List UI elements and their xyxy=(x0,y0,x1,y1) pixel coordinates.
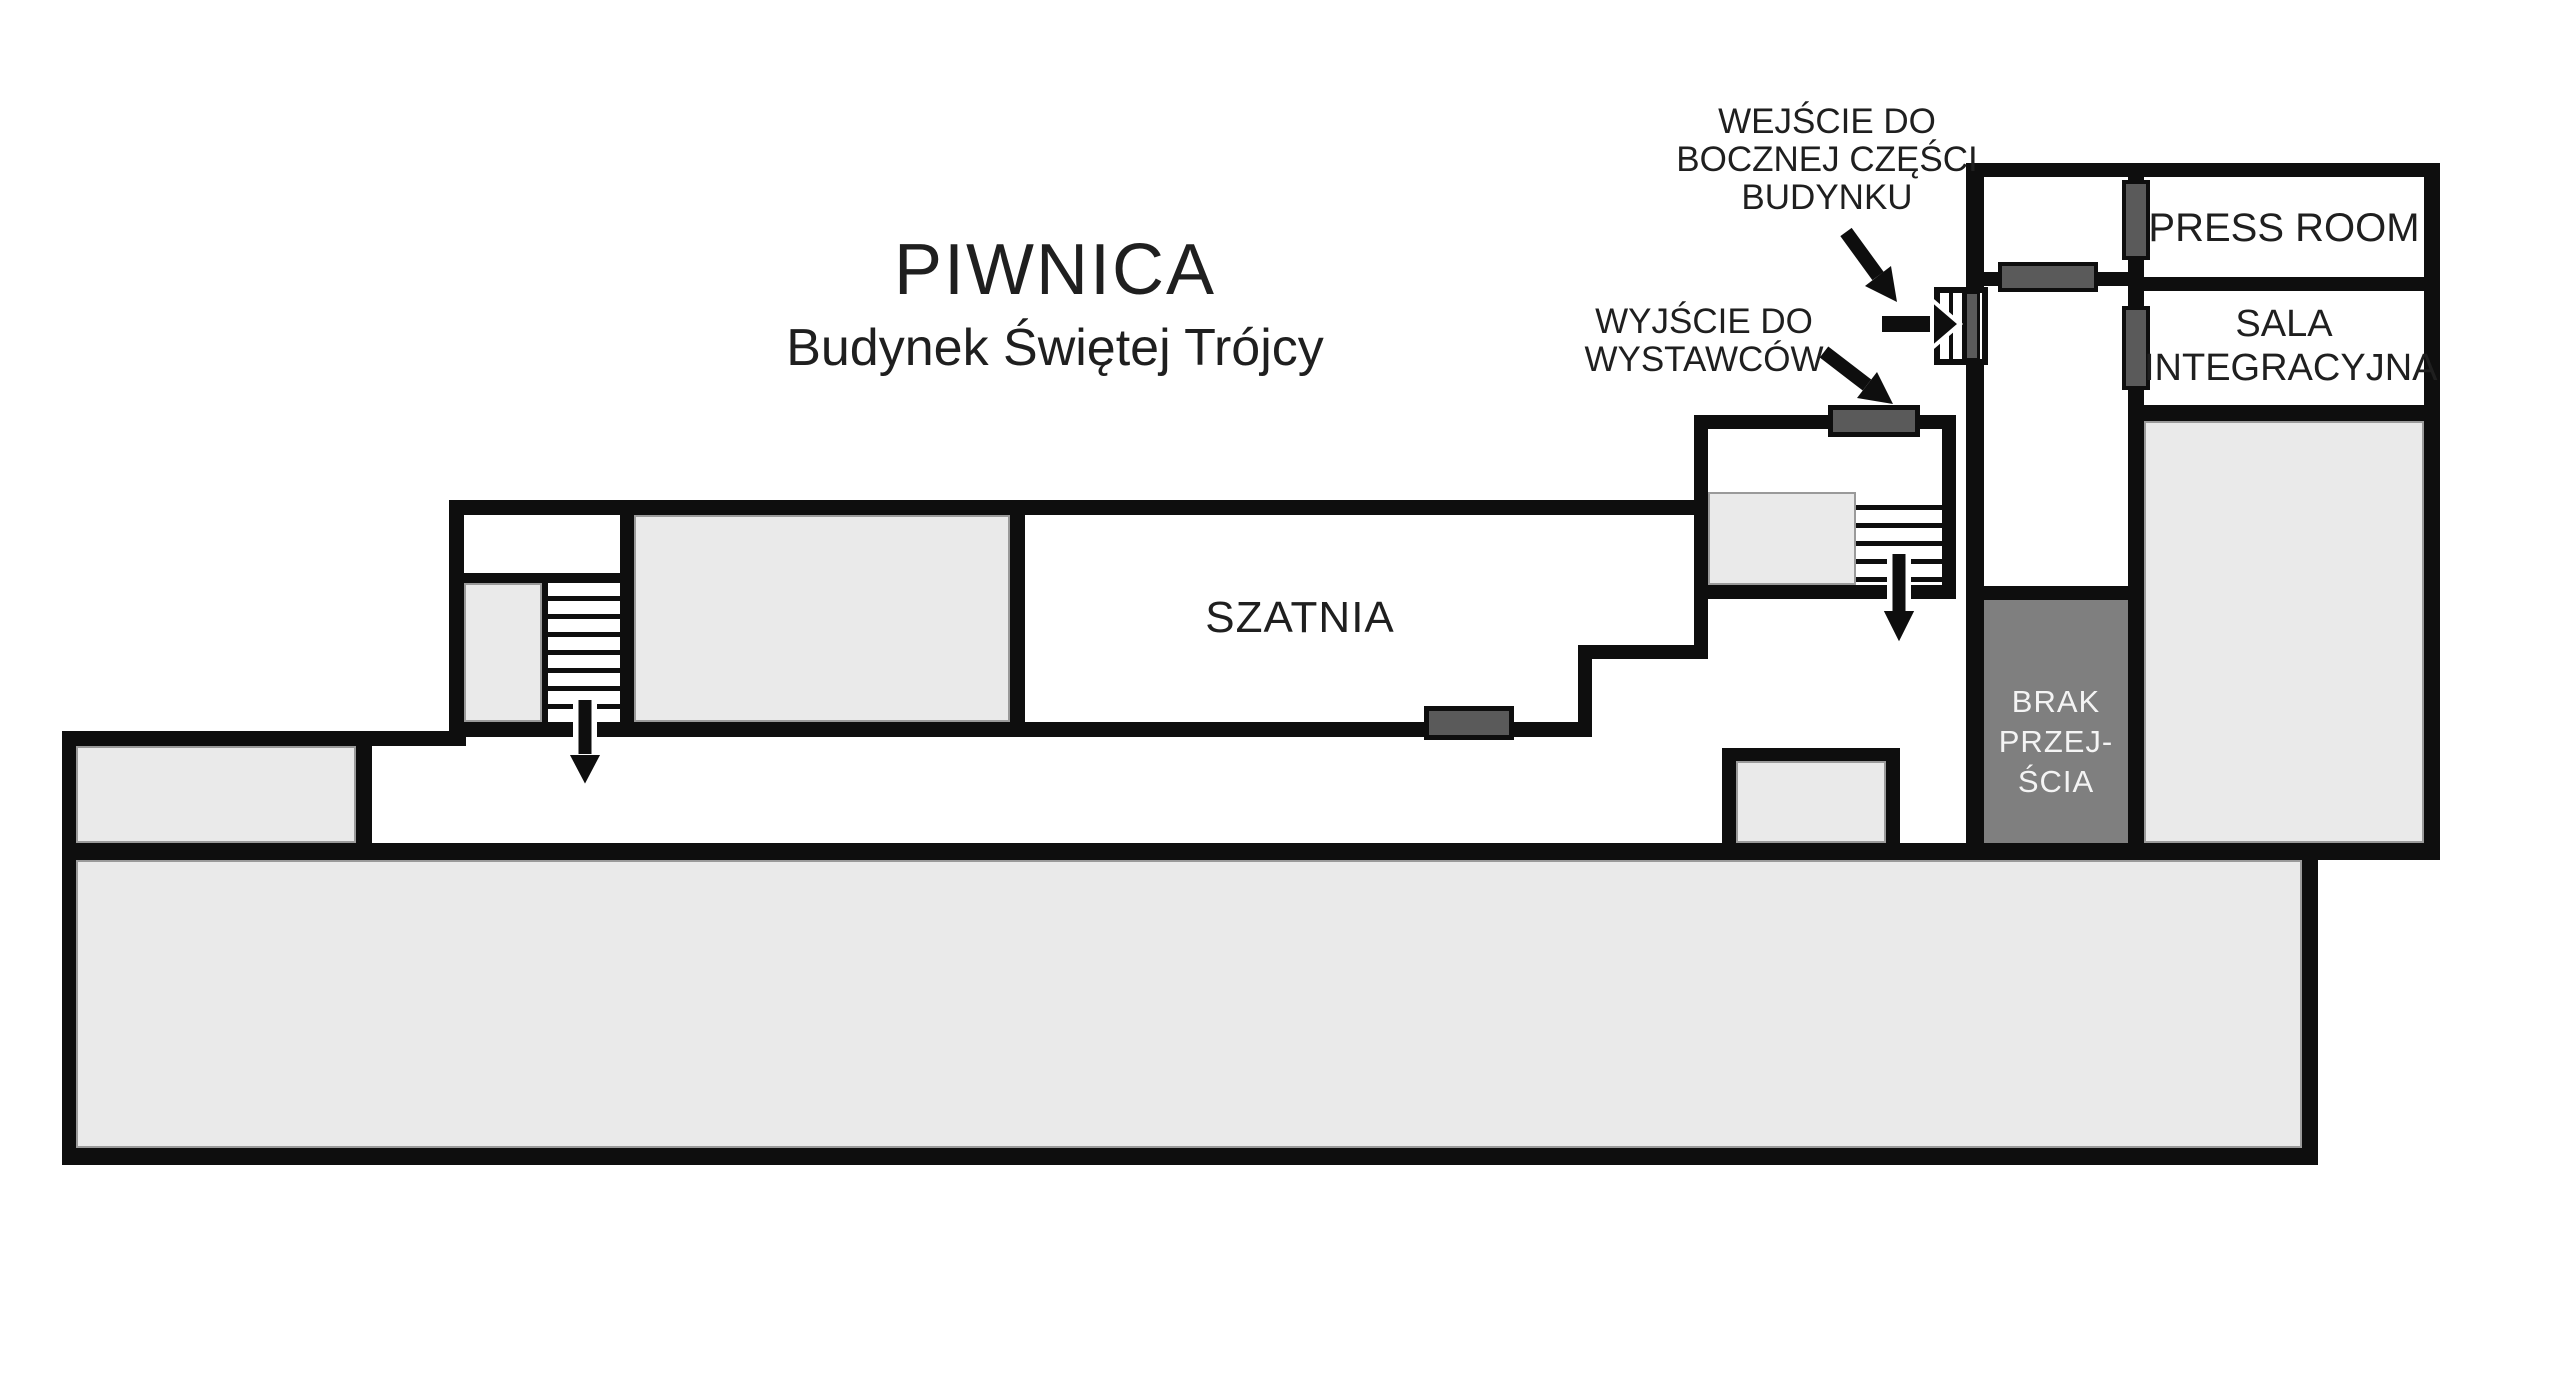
west-staircase xyxy=(548,583,620,722)
wall-leftblock-left xyxy=(62,731,76,860)
wall-no-passage-top xyxy=(1966,586,2144,600)
wall-west-stair-divider xyxy=(542,583,548,722)
wall-bottom-hall-top xyxy=(62,843,2440,860)
integration-room-label: SALA INTEGRACYJNA xyxy=(2144,302,2424,390)
exit-staircase xyxy=(1856,492,1942,585)
szatnia-door xyxy=(1424,706,1514,740)
no-passage-room: BRAK PRZEJ- ŚCIA xyxy=(1984,600,2128,843)
wall-small-room-right xyxy=(1886,748,1900,860)
side-entrance-door xyxy=(1964,291,1980,361)
floor-plan-canvas: PIWNICA Budynek Świętej Trójcy BRAK PRZE… xyxy=(0,0,2560,1392)
exhibitor-exit-door xyxy=(1828,405,1920,437)
wall-small-room-left xyxy=(1722,748,1736,860)
exit-block-gray-room xyxy=(1708,492,1856,585)
wall-east-block-top xyxy=(1966,163,2440,177)
wall-bottom-hall-left xyxy=(62,843,76,1165)
wall-west-stair-right xyxy=(620,515,634,737)
page-title: PIWNICA Budynek Świętej Trójcy xyxy=(655,232,1455,376)
wall-exit-block-right xyxy=(1942,415,1956,599)
wall-bottom-hall-right xyxy=(2302,843,2318,1165)
wall-west-stair-landing xyxy=(464,573,620,583)
wall-leftblock-top xyxy=(62,731,466,746)
west-stair-side-room xyxy=(464,583,542,722)
side-entrance-annotation: WEJŚCIE DO BOCZNEJ CZĘŚCI BUDYNKU xyxy=(1655,103,1999,217)
wall-leftblock-divider xyxy=(356,738,372,860)
corridor-small-room xyxy=(1736,761,1886,843)
szatnia-label: SZATNIA xyxy=(1100,594,1500,642)
west-large-room xyxy=(634,515,1010,722)
wall-small-room-top xyxy=(1722,748,1900,761)
left-block-gray-room xyxy=(76,746,356,843)
press-room-label: PRESS ROOM xyxy=(2144,206,2424,250)
wall-szatnia-left xyxy=(449,500,464,737)
wall-sala-bottom xyxy=(2128,405,2440,421)
no-passage-label: BRAK PRZEJ- ŚCIA xyxy=(1984,682,2128,802)
wall-exit-block-left xyxy=(1694,415,1708,659)
exhibitor-exit-annotation: WYJŚCIE DO WYSTAWCÓW xyxy=(1544,303,1864,379)
wall-outer-right xyxy=(2424,163,2440,860)
wall-szatnia-step-horizontal xyxy=(1578,645,1708,659)
wall-exit-block-bottom xyxy=(1694,585,1956,599)
wall-szatnia-top xyxy=(464,500,1708,515)
floor-title: PIWNICA xyxy=(655,232,1455,310)
entry-corridor-door xyxy=(1998,262,2098,292)
building-subtitle: Budynek Świętej Trójcy xyxy=(655,320,1455,376)
bottom-hall xyxy=(76,860,2302,1148)
wall-main-right-spine xyxy=(1966,163,1984,860)
wall-bottom-hall-bottom xyxy=(62,1148,2318,1165)
wall-west-room-right xyxy=(1010,515,1025,737)
wall-press-sala-divider xyxy=(2128,277,2440,291)
east-large-room xyxy=(2144,421,2424,843)
side-entrance-pointer-arrow xyxy=(1846,232,1897,302)
